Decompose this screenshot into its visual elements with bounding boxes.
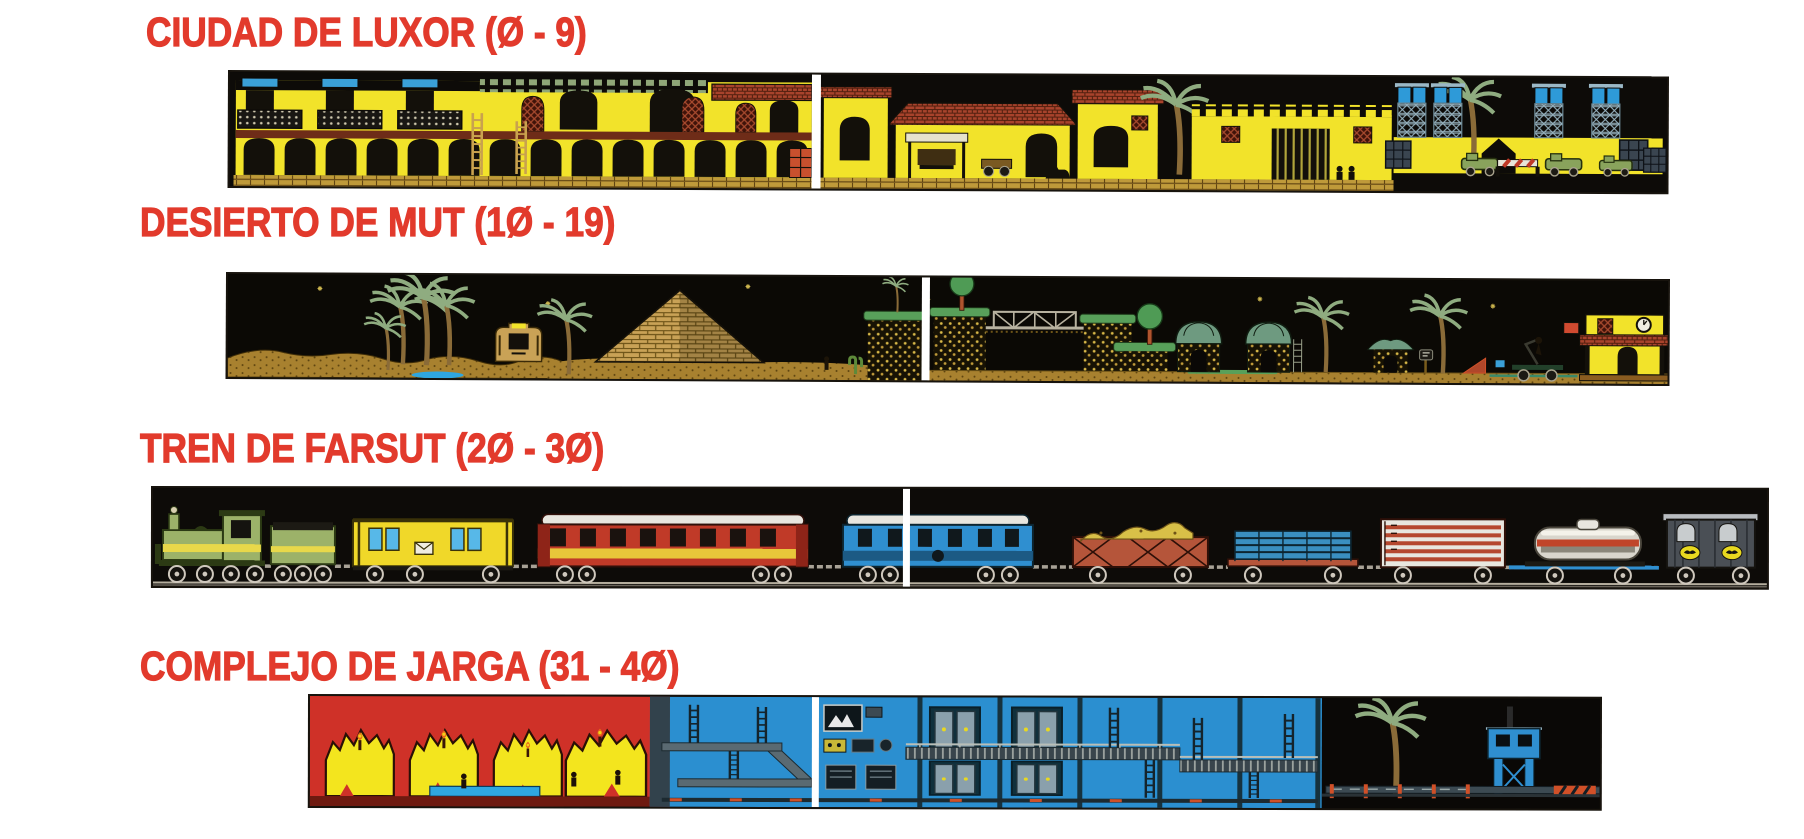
monitor-screen [824,705,862,731]
map-strip-desierto-de-mut [227,274,1667,384]
domed-hut [1176,322,1222,372]
bat-emblem [1722,546,1742,560]
tender [271,522,335,582]
hanging-sign [1564,323,1579,334]
lone-figure [824,356,829,370]
section-title: DESIERTO DE MUT (1Ø - 19) [140,202,615,243]
jarga-complex-art [310,696,1600,809]
bat-emblem [1680,546,1700,560]
section-title: TREN DE FARSUT (2Ø - 3Ø) [140,428,604,469]
farsut-train-art [153,488,1767,588]
fortress [1192,104,1392,180]
sphinx [496,323,542,361]
blue-sign [1496,360,1505,367]
scan-seam [921,277,930,380]
water-pool [430,786,540,796]
luxor-city-art [230,72,1667,192]
map-strip-complejo-de-jarga [310,696,1600,809]
scan-seam [812,697,819,807]
envelope-emblem [415,542,433,554]
map-strip-ciudad-de-luxor [230,72,1667,192]
section-title: CIUDAD DE LUXOR (Ø - 9) [146,12,587,53]
mut-desert-art [227,274,1667,384]
arcade-building [236,78,812,178]
section-title: COMPLEJO DE JARGA (31 - 4Ø) [140,646,679,687]
magazine-map-page: CIUDAD DE LUXOR (Ø - 9) [0,0,1804,839]
thatched-hut [1368,339,1414,373]
scan-seam [811,75,820,189]
scan-seam [903,489,910,587]
map-strip-tren-de-farsut [153,488,1767,588]
domed-hut [1246,322,1292,372]
